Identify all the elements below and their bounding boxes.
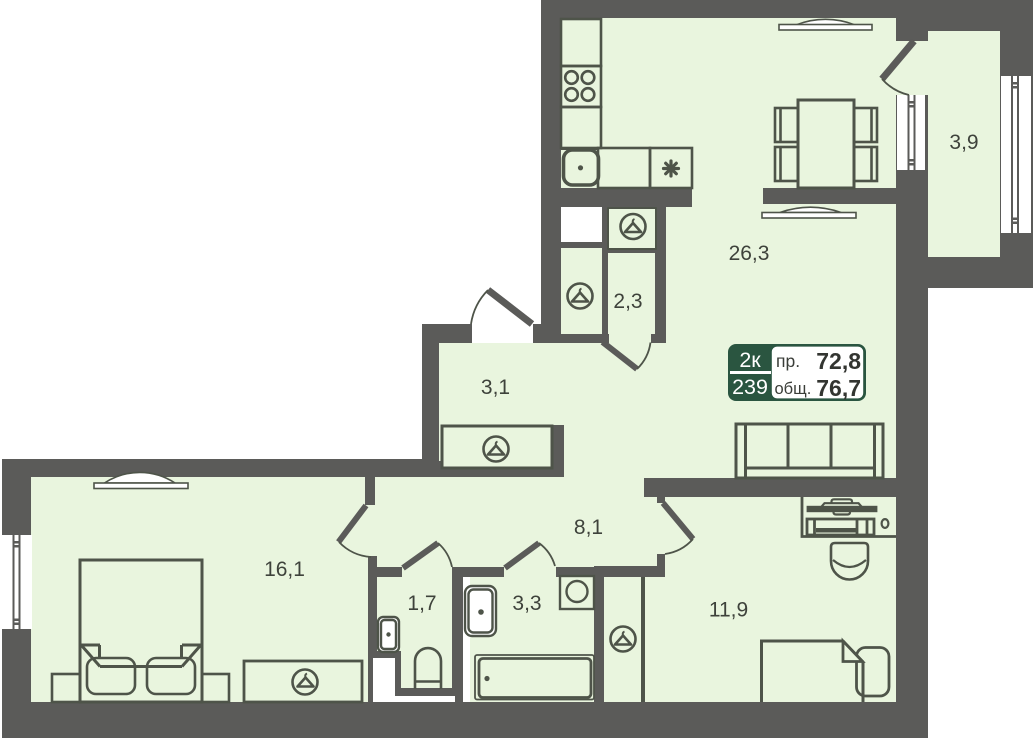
svg-text:26,3: 26,3 (729, 242, 770, 265)
svg-text:8,1: 8,1 (574, 516, 603, 539)
svg-text:3,3: 3,3 (512, 592, 541, 615)
svg-text:11,9: 11,9 (709, 599, 748, 622)
svg-text:239: 239 (732, 375, 768, 399)
svg-text:3,1: 3,1 (481, 376, 510, 399)
svg-text:76,7: 76,7 (816, 375, 861, 401)
svg-text:3,9: 3,9 (949, 131, 978, 154)
svg-text:пр.: пр. (776, 351, 800, 371)
svg-text:общ.: общ. (775, 380, 812, 398)
svg-text:72,8: 72,8 (816, 348, 861, 374)
svg-text:2,3: 2,3 (613, 290, 642, 313)
svg-text:2к: 2к (739, 348, 761, 372)
svg-text:16,1: 16,1 (264, 558, 305, 581)
svg-text:1,7: 1,7 (407, 592, 436, 615)
